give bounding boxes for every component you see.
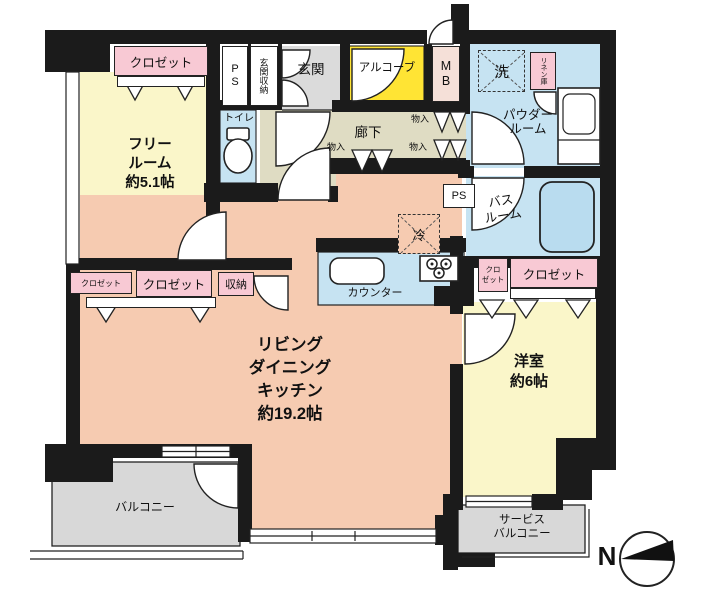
closet-right-small-box: クロ ゼット — [478, 258, 508, 292]
storage-box: 収納 — [218, 272, 254, 296]
closet-label: クロゼット — [130, 52, 193, 71]
meter-box-label: MB — [439, 59, 453, 89]
storage-small-label-1: 物入 — [320, 142, 352, 153]
washer-label: 洗 — [494, 61, 509, 82]
service-balcony-label: サービス バルコニー — [466, 513, 578, 542]
closet-right-interior — [510, 288, 596, 299]
powder-room-label: パウダー ルーム — [488, 108, 568, 137]
linen-storage-label: リネン庫 — [538, 57, 548, 85]
closet-left-label: クロゼット — [143, 274, 206, 293]
free-room-label: フリー ルーム 約5.1帖 — [90, 136, 210, 193]
closet-left-box: クロゼット — [136, 270, 212, 297]
washer-space: 洗 — [478, 50, 525, 92]
closet-top-box: クロゼット — [114, 46, 208, 76]
window-balcony-left — [162, 446, 230, 457]
stove-burners — [420, 256, 458, 281]
bathtub — [540, 182, 594, 252]
closet-left-small-box: クロゼット — [70, 272, 132, 294]
closet-right-box: クロゼット — [510, 258, 598, 288]
entrance-door-arc — [429, 20, 453, 44]
entrance-storage-box: 玄関収納 — [250, 46, 278, 106]
closet-right-label: クロゼット — [523, 264, 586, 283]
refrigerator-space: 冷 — [398, 214, 440, 254]
closet-right-small-label: クロ ゼット — [482, 265, 505, 285]
pipe-space-top-box: PS — [222, 46, 248, 106]
pipe-space-label: PS — [229, 63, 241, 89]
meter-box: MB — [432, 46, 460, 102]
western-room-label: 洋室 約6帖 — [478, 352, 580, 393]
corridor-label: 廊下 — [342, 125, 394, 141]
window-ldk-south — [250, 529, 436, 543]
closet-top-interior — [117, 76, 205, 87]
counter-label: カウンター — [335, 287, 415, 300]
storage-label: 収納 — [225, 276, 247, 292]
balcony-railing — [30, 551, 243, 559]
ldk-label: リビング ダイニング キッチン 約19.2帖 — [210, 334, 370, 426]
toilet-fixture — [224, 128, 252, 173]
window-western-room — [466, 496, 532, 507]
pipe-space-mid-label: PS — [452, 190, 467, 202]
linen-storage-box: リネン庫 — [530, 52, 556, 90]
north-label: N — [592, 541, 622, 572]
entrance-storage-label: 玄関収納 — [258, 58, 271, 94]
alcove-label: アルコーブ — [348, 62, 426, 76]
storage-small-label-2: 物入 — [405, 114, 435, 125]
window-free-room — [66, 72, 79, 264]
kitchen-sink — [330, 258, 384, 284]
entrance-label: 玄関 — [282, 62, 340, 78]
toilet-label: トイレ — [218, 113, 260, 125]
refrigerator-label: 冷 — [412, 225, 425, 244]
closet-left-small-label: クロゼット — [81, 278, 121, 289]
balcony-label: バルコニー — [95, 500, 195, 514]
compass-icon — [620, 532, 674, 586]
closet-left-interior — [86, 297, 216, 308]
storage-small-label-3: 物入 — [403, 142, 433, 153]
floor-plan: クロゼット PS 玄関収納 MB 洗 リネン庫 冷 PS クロ ゼット クロゼッ… — [0, 0, 702, 600]
